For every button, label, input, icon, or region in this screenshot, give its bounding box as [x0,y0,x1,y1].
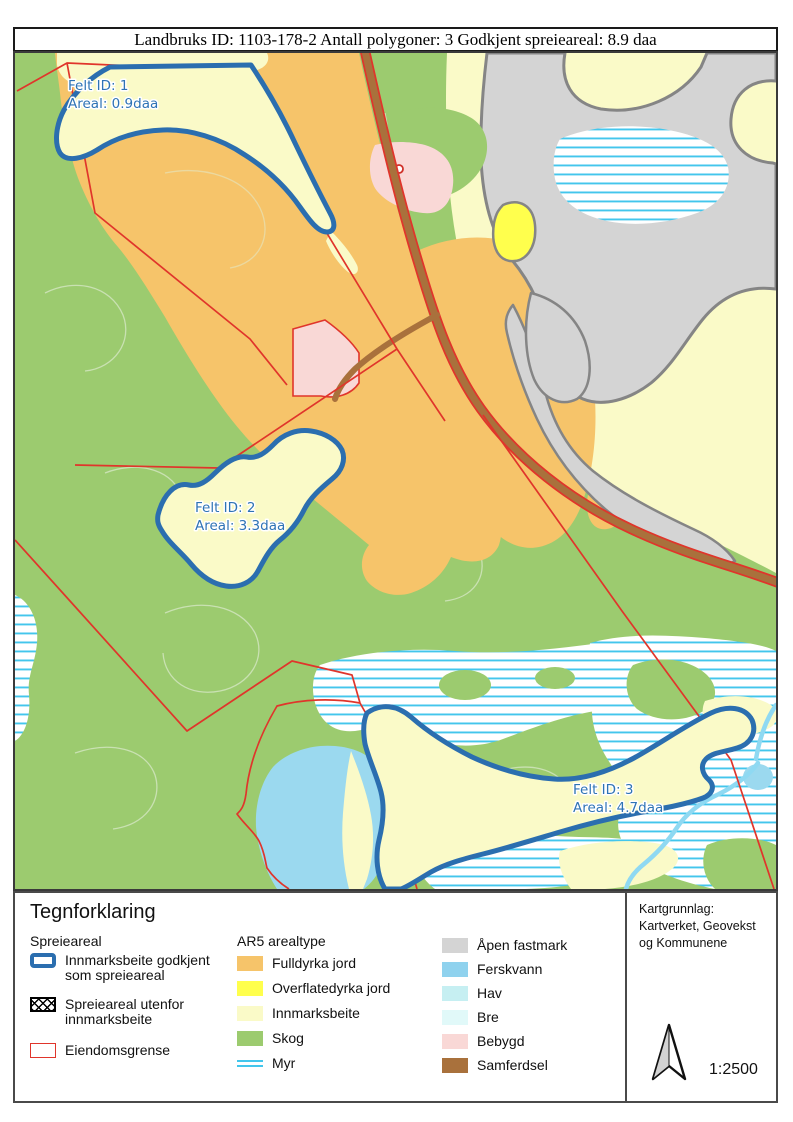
legend-item-utenfor: Spreieareal utenforinnmarksbeite [30,997,184,1027]
legend-item-ferskvann: Ferskvann [442,962,542,977]
map-source-panel: Kartgrunnlag: Kartverket, Geovekst og Ko… [625,893,778,1101]
overflatedyrka-patch [493,202,535,261]
legend-item-myr: Myr [237,1056,295,1071]
spreieareal-header: Spreieareal [30,933,102,949]
scale-label: 1:2500 [709,1061,758,1079]
red-outline-swatch [30,1043,56,1058]
attribution-line: og Kommunene [639,936,727,950]
field-3-id-label: Felt ID: 3 [573,782,633,798]
legend-item-hav: Hav [442,986,502,1001]
attribution-line: Kartgrunnlag: [639,902,714,916]
color-swatch [237,1031,263,1046]
blue-outline-swatch [30,953,56,968]
color-swatch [237,956,263,971]
legend-item-samferdsel: Samferdsel [442,1058,548,1073]
map-frame: Felt ID: 1 Areal: 0.9daa Felt ID: 2 Area… [13,51,778,891]
legend-item-apen-fastmark: Åpen fastmark [442,938,567,953]
legend-label: Eiendomsgrense [65,1043,170,1058]
legend-label: Ferskvann [477,962,542,977]
legend-item-eiendomsgrense: Eiendomsgrense [30,1043,170,1058]
color-swatch [442,1058,468,1073]
legend-label: Fulldyrka jord [272,956,356,971]
attribution: Kartgrunnlag: Kartverket, Geovekst og Ko… [639,901,756,952]
legend-item-godkjent: Innmarksbeite godkjentsom spreieareal [30,953,210,983]
north-arrow-icon [649,1023,689,1090]
color-swatch [442,962,468,977]
color-swatch [442,1034,468,1049]
ar5-header: AR5 arealtype [237,933,326,949]
legend-label: Samferdsel [477,1058,548,1073]
color-swatch [442,938,468,953]
title-bar: Landbruks ID: 1103-178-2 Antall polygone… [13,27,778,52]
color-swatch [237,1006,263,1021]
legend-label: Spreieareal utenfor [65,996,184,1012]
title-text: Landbruks ID: 1103-178-2 Antall polygone… [134,30,656,50]
crosshatch-swatch [30,997,56,1012]
legend-item-fulldyrka: Fulldyrka jord [237,956,356,971]
myr-swatch [237,1056,263,1071]
legend-label: Hav [477,986,502,1001]
color-swatch [442,1010,468,1025]
legend: Tegnforklaring Spreieareal Innmarksbeite… [13,891,778,1103]
legend-label: Bre [477,1010,499,1025]
legend-item-innmarksbeite: Innmarksbeite [237,1006,360,1021]
legend-label: Myr [272,1056,295,1071]
legend-title: Tegnforklaring [30,901,156,924]
legend-label: Bebygd [477,1034,524,1049]
field-1-areal-label: Areal: 0.9daa [68,96,158,112]
myr-in-gray [554,126,729,224]
color-swatch [442,986,468,1001]
legend-label: Skog [272,1031,304,1046]
legend-item-overflatedyrka: Overflatedyrka jord [237,981,390,996]
legend-label: Innmarksbeite [272,1006,360,1021]
field-3-areal-label: Areal: 4.7daa [573,800,663,816]
legend-item-skog: Skog [237,1031,304,1046]
color-swatch [237,981,263,996]
attribution-line: Kartverket, Geovekst [639,919,756,933]
field-2-id-label: Felt ID: 2 [195,500,255,516]
field-2-areal-label: Areal: 3.3daa [195,518,285,534]
legend-item-bre: Bre [442,1010,499,1025]
legend-label: Åpen fastmark [477,938,567,953]
legend-label: Innmarksbeite godkjent [65,952,210,968]
legend-label: Overflatedyrka jord [272,981,390,996]
map-canvas: Felt ID: 1 Areal: 0.9daa Felt ID: 2 Area… [15,53,776,889]
legend-item-bebygd: Bebygd [442,1034,524,1049]
report-page: Landbruks ID: 1103-178-2 Antall polygone… [0,0,793,1122]
field-1-id-label: Felt ID: 1 [68,78,128,94]
